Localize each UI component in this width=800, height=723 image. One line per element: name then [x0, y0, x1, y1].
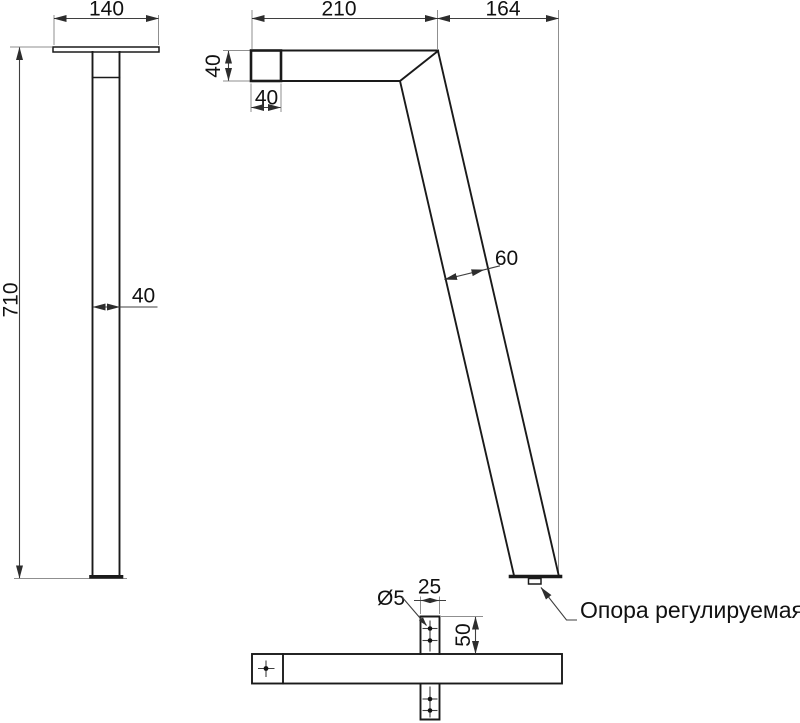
dim-label-plate-width: 140 — [89, 0, 124, 21]
adjustable-foot — [529, 579, 542, 585]
hole-leader-line — [402, 597, 427, 626]
mount-plate-outline — [53, 47, 159, 52]
dim-label-tab-height: 50 — [452, 623, 475, 646]
furniture-leg-drawing: 710 140 40 210 164 — [0, 0, 800, 723]
technical-drawing-canvas: 710 140 40 210 164 — [0, 0, 800, 723]
plate-outline — [252, 654, 562, 684]
screw-hole — [428, 626, 433, 631]
dim-label-leg-width: 40 — [132, 285, 155, 308]
arm-section-square — [251, 51, 281, 82]
center-point — [264, 666, 269, 671]
dim-label-diagonal-width: 60 — [495, 247, 518, 270]
plan-view: 25 Ø5 50 — [252, 576, 562, 720]
miter-joint-line — [400, 51, 438, 81]
dimension-line-diagonal-width — [445, 270, 485, 280]
callout-leader-line — [541, 588, 577, 621]
dim-label-leg-height: 710 — [0, 282, 23, 317]
leg-right-edge — [438, 51, 559, 575]
dim-label-section-width: 40 — [255, 87, 278, 110]
leg-left-edge — [400, 81, 514, 576]
front-view: 710 140 40 — [0, 0, 159, 579]
screw-hole — [428, 697, 433, 702]
dim-label-tab-width: 25 — [418, 576, 441, 599]
screw-hole — [428, 638, 433, 643]
dim-label-foot-offset: 164 — [485, 0, 520, 21]
dim-label-hole-diameter: Ø5 — [377, 587, 405, 610]
callout-adjustable-foot: Опора регулируемая — [580, 597, 800, 623]
dim-label-section-height: 40 — [202, 54, 225, 77]
side-view: 210 164 40 40 60 Опора регулируемая — [202, 0, 800, 623]
dim-label-arm-length: 210 — [321, 0, 356, 21]
screw-hole — [428, 708, 433, 713]
